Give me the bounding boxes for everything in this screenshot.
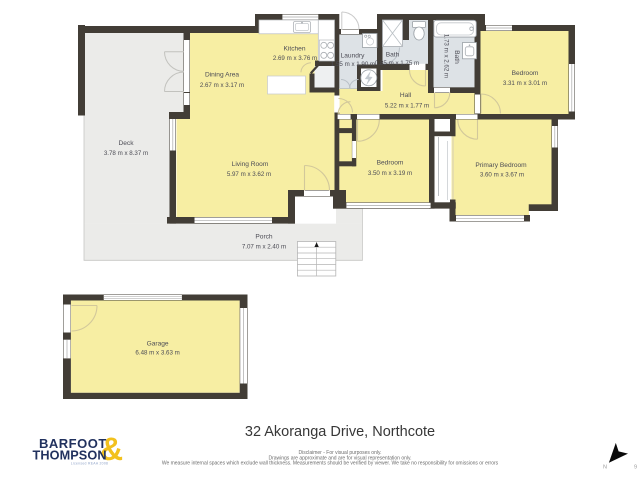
svg-text:2.69 m x 3.76 m: 2.69 m x 3.76 m: [273, 55, 317, 62]
svg-text:9: 9: [634, 465, 637, 471]
svg-text:Hall: Hall: [400, 92, 412, 99]
svg-text:6.48 m x 3.63 m: 6.48 m x 3.63 m: [135, 350, 179, 357]
svg-text:Licensed REAA 2008: Licensed REAA 2008: [71, 461, 108, 465]
svg-text:1.73 m x 2.62 m: 1.73 m x 2.62 m: [443, 34, 450, 78]
svg-text:Living Room: Living Room: [232, 161, 269, 168]
svg-text:Laundry: Laundry: [341, 53, 366, 60]
svg-text:Kitchen: Kitchen: [284, 46, 306, 53]
svg-text:0.85 m x 1.75 m: 0.85 m x 1.75 m: [375, 60, 419, 67]
svg-text:N: N: [603, 465, 607, 471]
svg-text:2.67 m x 3.17 m: 2.67 m x 3.17 m: [200, 82, 244, 89]
svg-text:5.22 m x 1.77 m: 5.22 m x 1.77 m: [385, 103, 429, 110]
svg-text:7.07 m x 2.40 m: 7.07 m x 2.40 m: [242, 243, 286, 250]
svg-text:Primary Bedroom: Primary Bedroom: [475, 162, 527, 169]
svg-text:Porch: Porch: [255, 233, 273, 240]
svg-text:32 Akoranga Drive, Northcote: 32 Akoranga Drive, Northcote: [245, 424, 435, 440]
svg-text:Bath: Bath: [453, 50, 460, 64]
svg-text:3.78 m x 8.37 m: 3.78 m x 8.37 m: [104, 150, 148, 157]
svg-text:Bedroom: Bedroom: [512, 70, 539, 77]
svg-text:3.60 m x 3.67 m: 3.60 m x 3.67 m: [480, 171, 524, 178]
svg-text:3.50 m x 3.19 m: 3.50 m x 3.19 m: [368, 170, 412, 177]
svg-text:Garage: Garage: [147, 341, 169, 348]
svg-text:THOMPSON: THOMPSON: [33, 448, 107, 462]
svg-text:Deck: Deck: [118, 140, 134, 147]
svg-text:Dining Area: Dining Area: [205, 72, 239, 79]
svg-text:We measure internal spaces whi: We measure internal spaces which exclude…: [162, 461, 499, 467]
svg-text:Bath: Bath: [386, 52, 400, 59]
svg-text:Bedroom: Bedroom: [377, 160, 404, 167]
svg-text:3.31 m x 3.01 m: 3.31 m x 3.01 m: [503, 80, 547, 87]
svg-text:1.55 m x 1.90 m: 1.55 m x 1.90 m: [331, 61, 375, 68]
svg-text:5.97 m x 3.62 m: 5.97 m x 3.62 m: [227, 171, 271, 178]
